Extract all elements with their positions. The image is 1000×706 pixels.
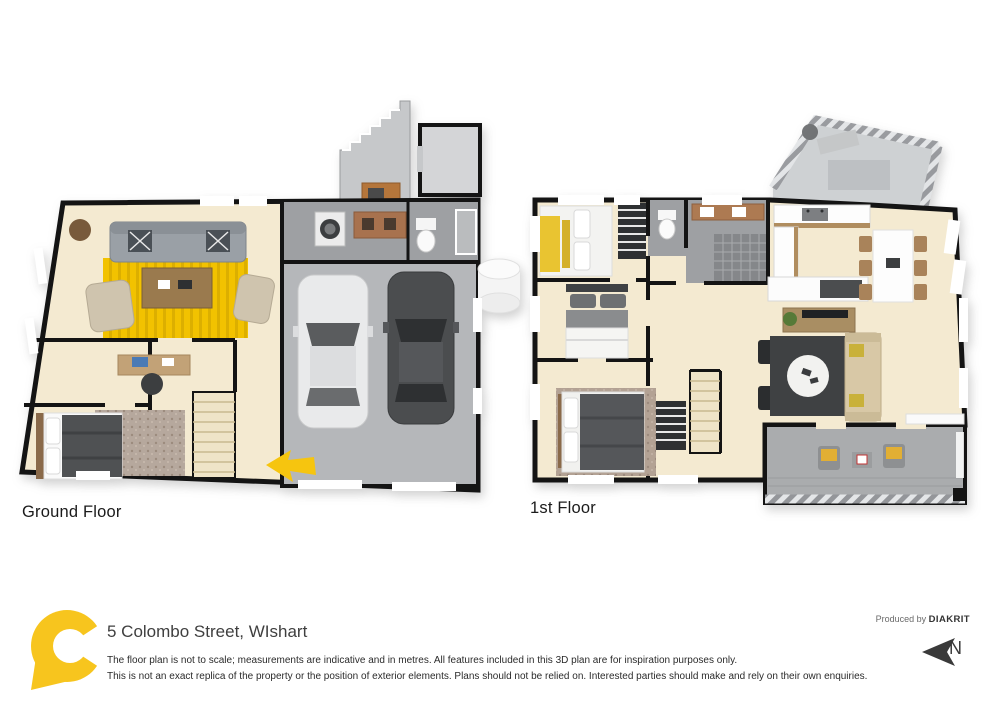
porch-room <box>417 125 480 195</box>
garage <box>282 262 478 491</box>
laptop <box>132 357 148 367</box>
sofa <box>845 333 881 421</box>
north-arrow-icon <box>912 638 972 668</box>
linen-closet <box>656 401 686 450</box>
shower <box>456 210 476 254</box>
garage-door-right <box>392 482 456 491</box>
staircase <box>193 392 235 478</box>
brand-c-pin-logo-icon <box>27 606 105 696</box>
car-white <box>293 275 373 428</box>
media-sideboard <box>783 308 855 332</box>
produced-by: Produced by DIAKRIT <box>770 614 970 625</box>
water-tank <box>478 259 520 313</box>
floor-lamp <box>69 219 91 241</box>
balcony-table <box>852 452 872 468</box>
armchair-left <box>85 279 135 333</box>
toilet <box>659 219 675 239</box>
disclaimer-line-2: This is not an exact replica of the prop… <box>107 671 867 682</box>
wardrobe <box>618 203 646 259</box>
master-bedroom <box>556 388 656 476</box>
desk <box>118 355 190 375</box>
office-chair <box>141 373 163 395</box>
sink <box>802 208 828 221</box>
laundry-bench <box>354 212 406 238</box>
brand-name: DIAKRIT <box>929 614 970 625</box>
plant <box>783 312 797 326</box>
cooktop <box>820 280 862 298</box>
first-floor-plan <box>518 88 983 523</box>
car-dark <box>383 272 459 424</box>
deck-table <box>828 160 890 190</box>
disclaimer-line-1: The floor plan is not to scale; measurem… <box>107 655 737 666</box>
dining-area <box>859 230 927 302</box>
property-address: 5 Colombo Street, WIshart <box>107 622 307 642</box>
armchair-right <box>232 273 275 325</box>
toilet <box>416 218 436 230</box>
staircase <box>690 371 720 453</box>
bedroom <box>36 410 185 479</box>
footer: 5 Colombo Street, WIshart The floor plan… <box>0 600 1000 706</box>
ground-floor-plan <box>10 88 520 508</box>
balcony <box>765 421 965 503</box>
lounge <box>758 333 881 421</box>
servery-bench <box>906 414 964 424</box>
produced-by-text: Produced by <box>876 614 927 624</box>
north-label: N <box>949 638 962 659</box>
floorplan-sheet: { "plans": { "ground": { "label": "Groun… <box>0 0 1000 706</box>
laundry-bathroom <box>280 202 478 262</box>
bathroom <box>686 200 768 283</box>
sofa <box>110 222 246 262</box>
garage-door-left <box>298 480 362 489</box>
bed <box>36 413 122 479</box>
wc <box>658 210 676 239</box>
ground-floor-label: Ground Floor <box>22 503 122 522</box>
tv <box>802 310 848 318</box>
first-floor-label: 1st Floor <box>530 499 596 518</box>
exterior-entry-stairs <box>340 101 410 210</box>
coffee-table <box>142 268 212 308</box>
